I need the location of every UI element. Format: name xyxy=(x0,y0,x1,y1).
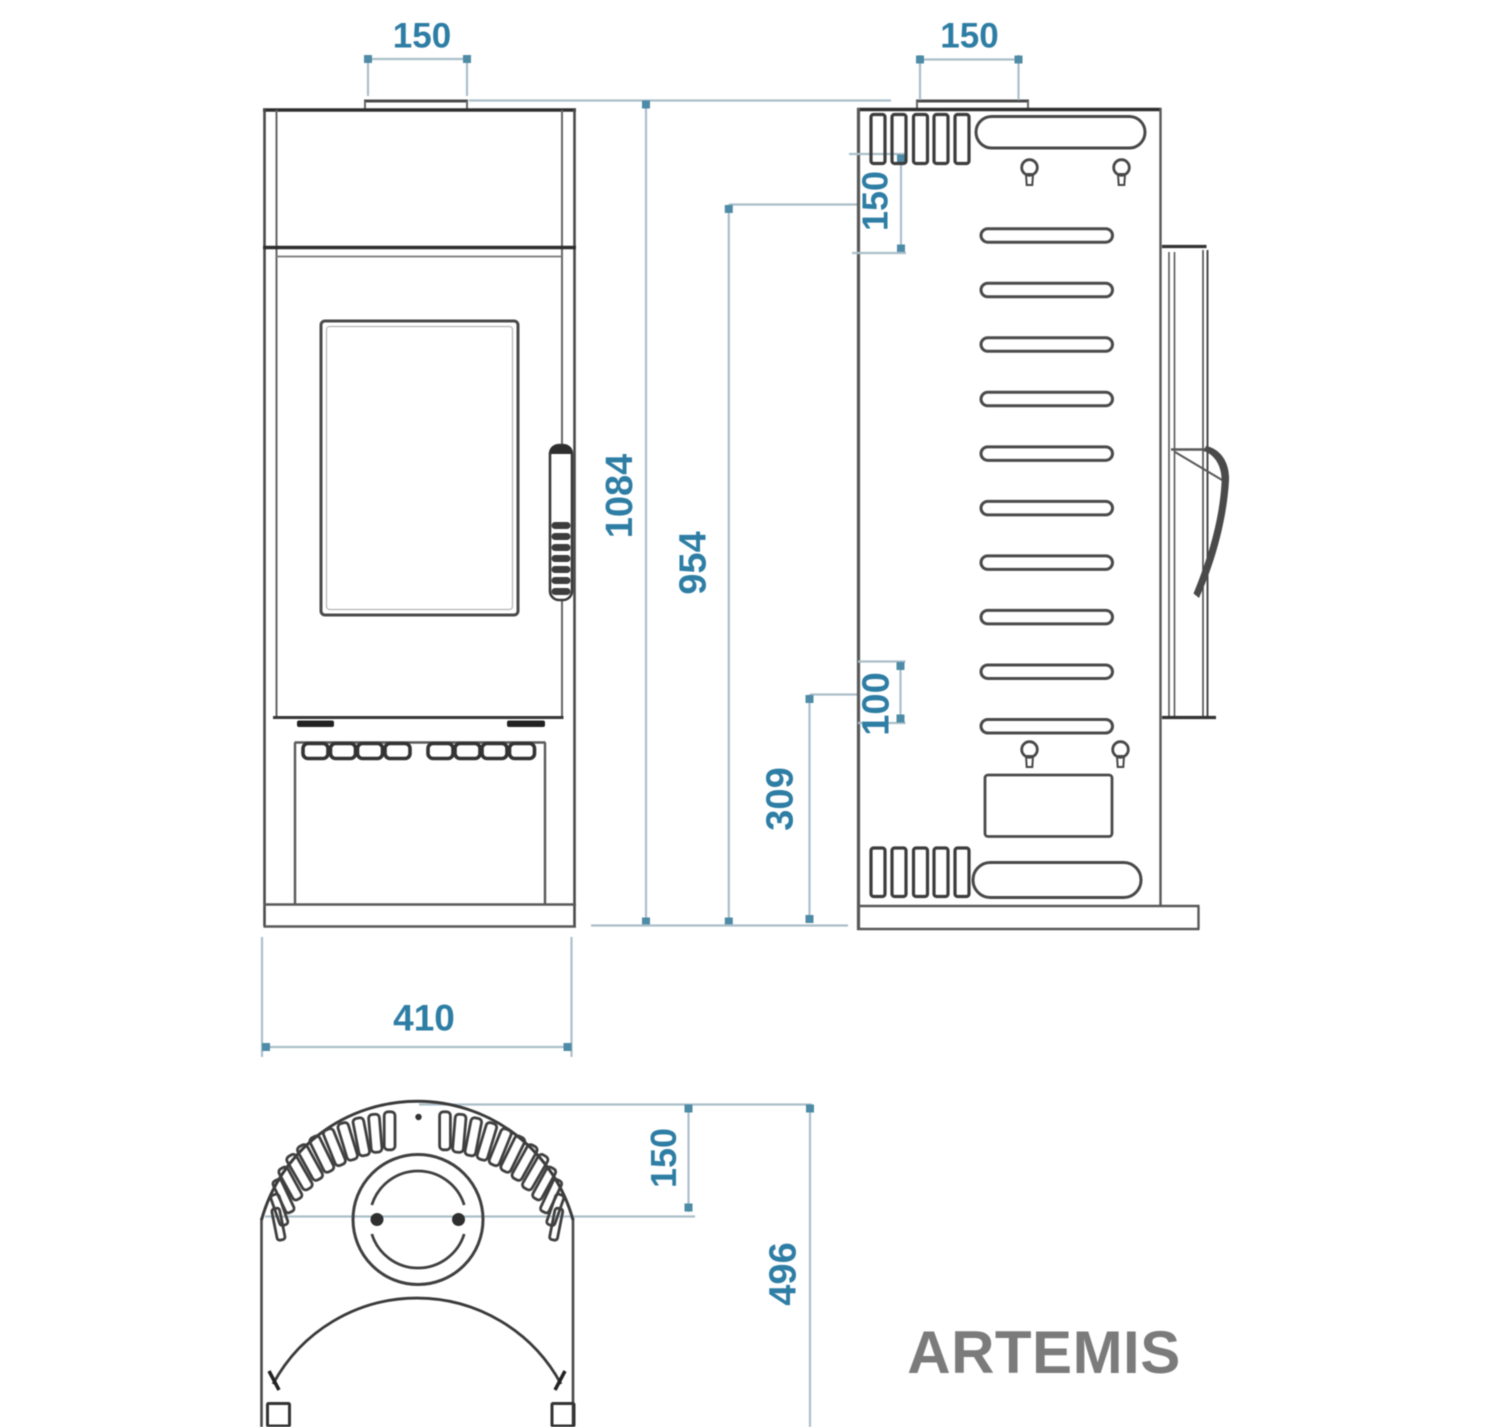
svg-text:1084: 1084 xyxy=(599,454,641,539)
svg-text:150: 150 xyxy=(393,17,451,56)
svg-text:309: 309 xyxy=(760,767,802,830)
svg-text:150: 150 xyxy=(855,171,896,231)
svg-text:954: 954 xyxy=(673,531,715,594)
svg-text:150: 150 xyxy=(643,1128,684,1188)
svg-text:150: 150 xyxy=(940,17,998,56)
svg-text:496: 496 xyxy=(763,1242,805,1305)
svg-text:ARTEMIS: ARTEMIS xyxy=(907,1319,1181,1386)
svg-text:410: 410 xyxy=(393,998,455,1039)
svg-text:100: 100 xyxy=(856,672,898,735)
